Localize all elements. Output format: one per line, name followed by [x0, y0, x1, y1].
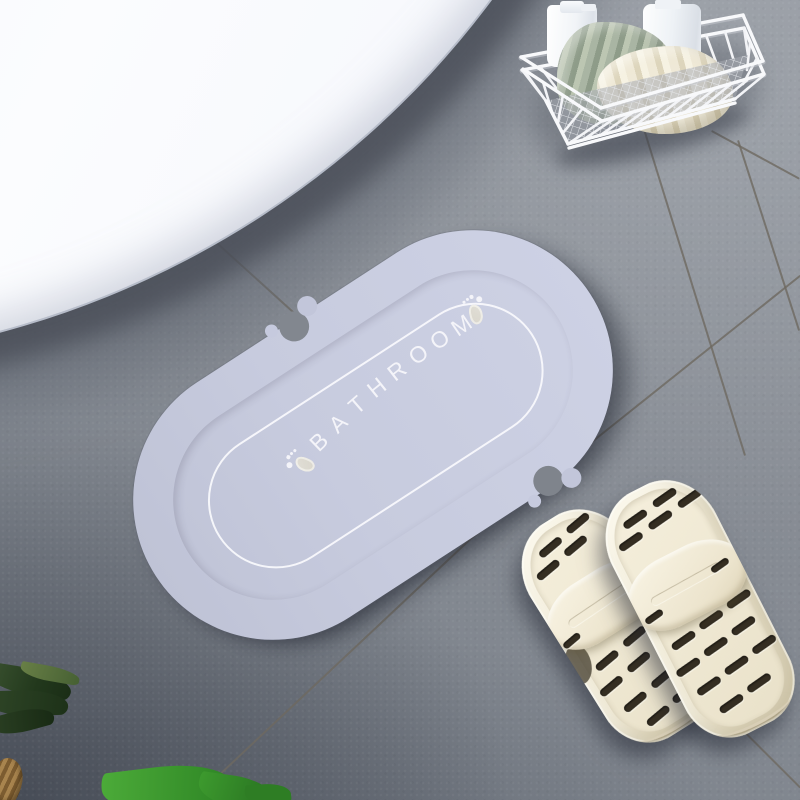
tile-grout-line — [737, 140, 800, 331]
green-leaf — [244, 782, 291, 800]
wire-basket-front — [503, 0, 773, 160]
wicker-basket-corner — [0, 756, 26, 800]
bathroom-floor-scene: B A T H R O O M — [0, 0, 800, 800]
mat-edge-notch-tab — [526, 492, 544, 510]
